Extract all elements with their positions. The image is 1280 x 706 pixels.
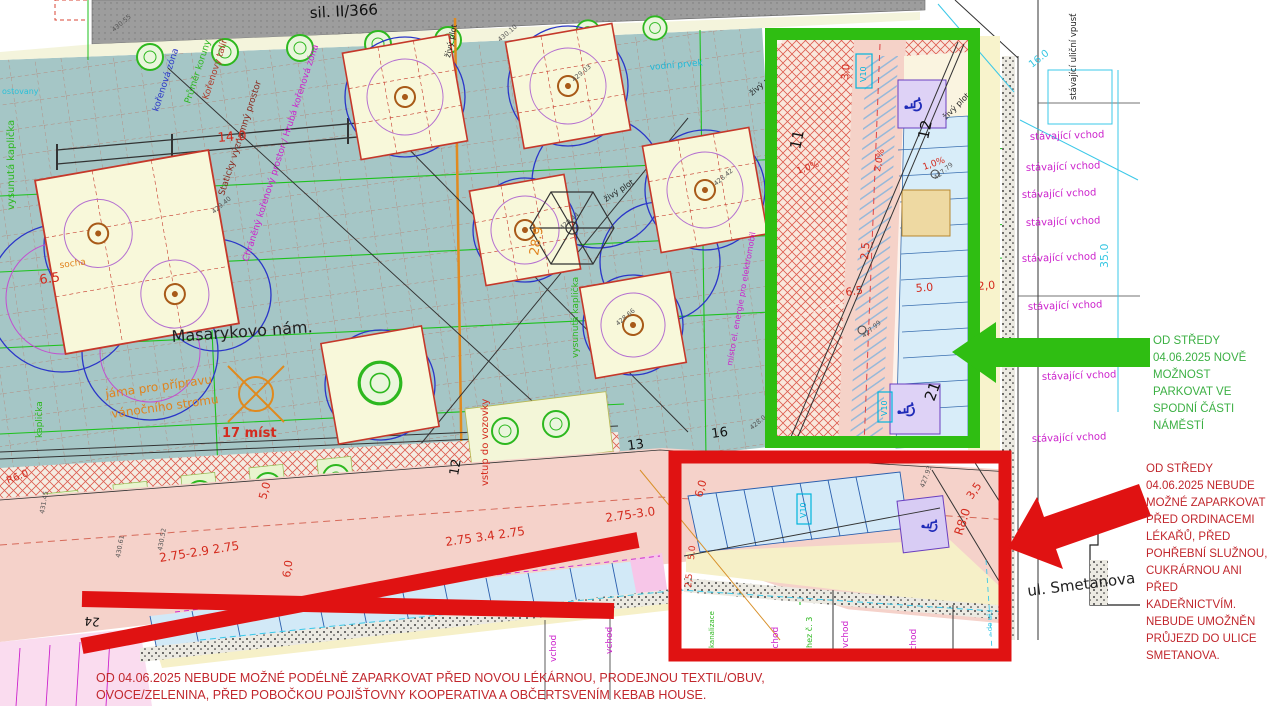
entrance-label: stávající vchod [1028, 298, 1103, 313]
red-note-line: PŘED [1146, 580, 1278, 597]
street-right-label: ul. Smetanova [1026, 569, 1136, 600]
dim-label: 6.5 [38, 270, 61, 288]
red-note-line: MOŽNÉ ZAPARKOVAT [1146, 495, 1278, 512]
sewer-label: kanalizace [708, 611, 716, 648]
vchod-label: vchod [605, 627, 615, 654]
chapel-small-label: kaplička [34, 401, 45, 438]
entrance-label: stávající vchod [1022, 186, 1097, 201]
chapel-label: vysunutá kaplička [570, 277, 581, 358]
v10-label: V10 [799, 502, 808, 518]
entrance-label: stávající vchod [1022, 250, 1097, 265]
red-note-line: NEBUDE UMOŽNĚN [1146, 614, 1278, 631]
green-note-line: 04.06.2025 NOVĚ [1153, 350, 1273, 367]
bay-number: 13 [626, 437, 644, 454]
dim-label: 2,5 [684, 573, 695, 588]
v10-label: V10 [859, 66, 868, 82]
vchod-label: vchod [841, 621, 851, 648]
dim-label: 16.0 [1027, 48, 1051, 70]
green-note-line: PARKOVAT VE [1153, 384, 1273, 401]
bay-number: 12 [447, 458, 465, 477]
red-note-line: 04.06.2025 NEBUDE [1146, 478, 1278, 495]
dim-label: 5.0 [687, 545, 698, 560]
dim-label: 3,0 [840, 63, 852, 80]
entrance-label: stávající vchod [1032, 430, 1107, 445]
spots-label: 17 míst [222, 426, 277, 441]
site-plan-screenshot: ♿ ♿ ♿ [0, 0, 1280, 706]
to-street-label: - do ul. [986, 612, 994, 636]
red-note-line: CUKRÁRNOU ANI [1146, 563, 1278, 580]
square-tree [359, 362, 401, 404]
red-note-line: LÉKAŘŮ, PŘED [1146, 529, 1278, 546]
bottom-note-line: OVOCE/ZELENINA, PŘED POBOČKOU POJIŠŤOVNY… [96, 687, 776, 704]
street-top-label: sil. II/366 [309, 0, 378, 22]
red-note-line: POHŘEBNÍ SLUŽNOU, [1146, 546, 1278, 563]
inlet-label: stávající uliční vpusť [1068, 13, 1079, 100]
house3-label: hez č. 3 [804, 617, 814, 648]
green-note: OD STŘEDY 04.06.2025 NOVĚ MOŽNOST PARKOV… [1153, 333, 1273, 435]
green-note-line: NÁMĚSTÍ [1153, 418, 1273, 435]
dim-label: 14.0 [217, 129, 247, 146]
dim-label: 5.0 [915, 281, 934, 295]
green-note-line: MOŽNOST [1153, 367, 1273, 384]
dim-label: 2,5 [858, 242, 872, 261]
vchod-label: vchod [549, 635, 559, 662]
bay-number: 24 [84, 614, 100, 629]
bottom-note: OD 04.06.2025 NEBUDE MOŽNÉ PODÉLNĚ ZAPAR… [96, 670, 776, 704]
red-arrow [1008, 484, 1151, 569]
partial-label: ostovany [2, 87, 39, 96]
site-plan-map: ♿ ♿ ♿ [0, 0, 1280, 706]
dim-label: 6.5 [845, 284, 864, 299]
bottom-note-line: OD 04.06.2025 NEBUDE MOŽNÉ PODÉLNĚ ZAPAR… [96, 670, 776, 687]
bay-number: 16 [710, 425, 728, 442]
red-note-line: PRŮJEZD DO ULICE [1146, 631, 1278, 648]
red-note-line: KADEŘNICTVÍM. [1146, 597, 1278, 614]
chapel-label: vysunutá kaplička [5, 120, 17, 210]
entrance-label: stávající vchod [1026, 159, 1101, 174]
red-note-line: OD STŘEDY [1146, 461, 1278, 478]
green-note-line: SPODNÍ ČÁSTI [1153, 401, 1273, 418]
red-note: OD STŘEDY 04.06.2025 NEBUDE MOŽNÉ ZAPARK… [1146, 461, 1278, 665]
green-note-line: OD STŘEDY [1153, 333, 1273, 350]
red-note-line: PŘED ORDINACEMI [1146, 512, 1278, 529]
dim-label: 6,0 [280, 559, 295, 578]
entrance-label: stávající vchod [1042, 368, 1117, 383]
road-entry-label: vstup do vozovky [480, 399, 491, 486]
dim-label: 35.0 [1098, 244, 1111, 269]
entrance-label: stávající vchod [1026, 214, 1101, 229]
red-note-line: SMETANOVA. [1146, 648, 1278, 665]
v10-label: V10 [880, 400, 889, 416]
wheelchair-icon: ♿ [900, 93, 928, 115]
wheelchair-icon: ♿ [893, 398, 921, 420]
